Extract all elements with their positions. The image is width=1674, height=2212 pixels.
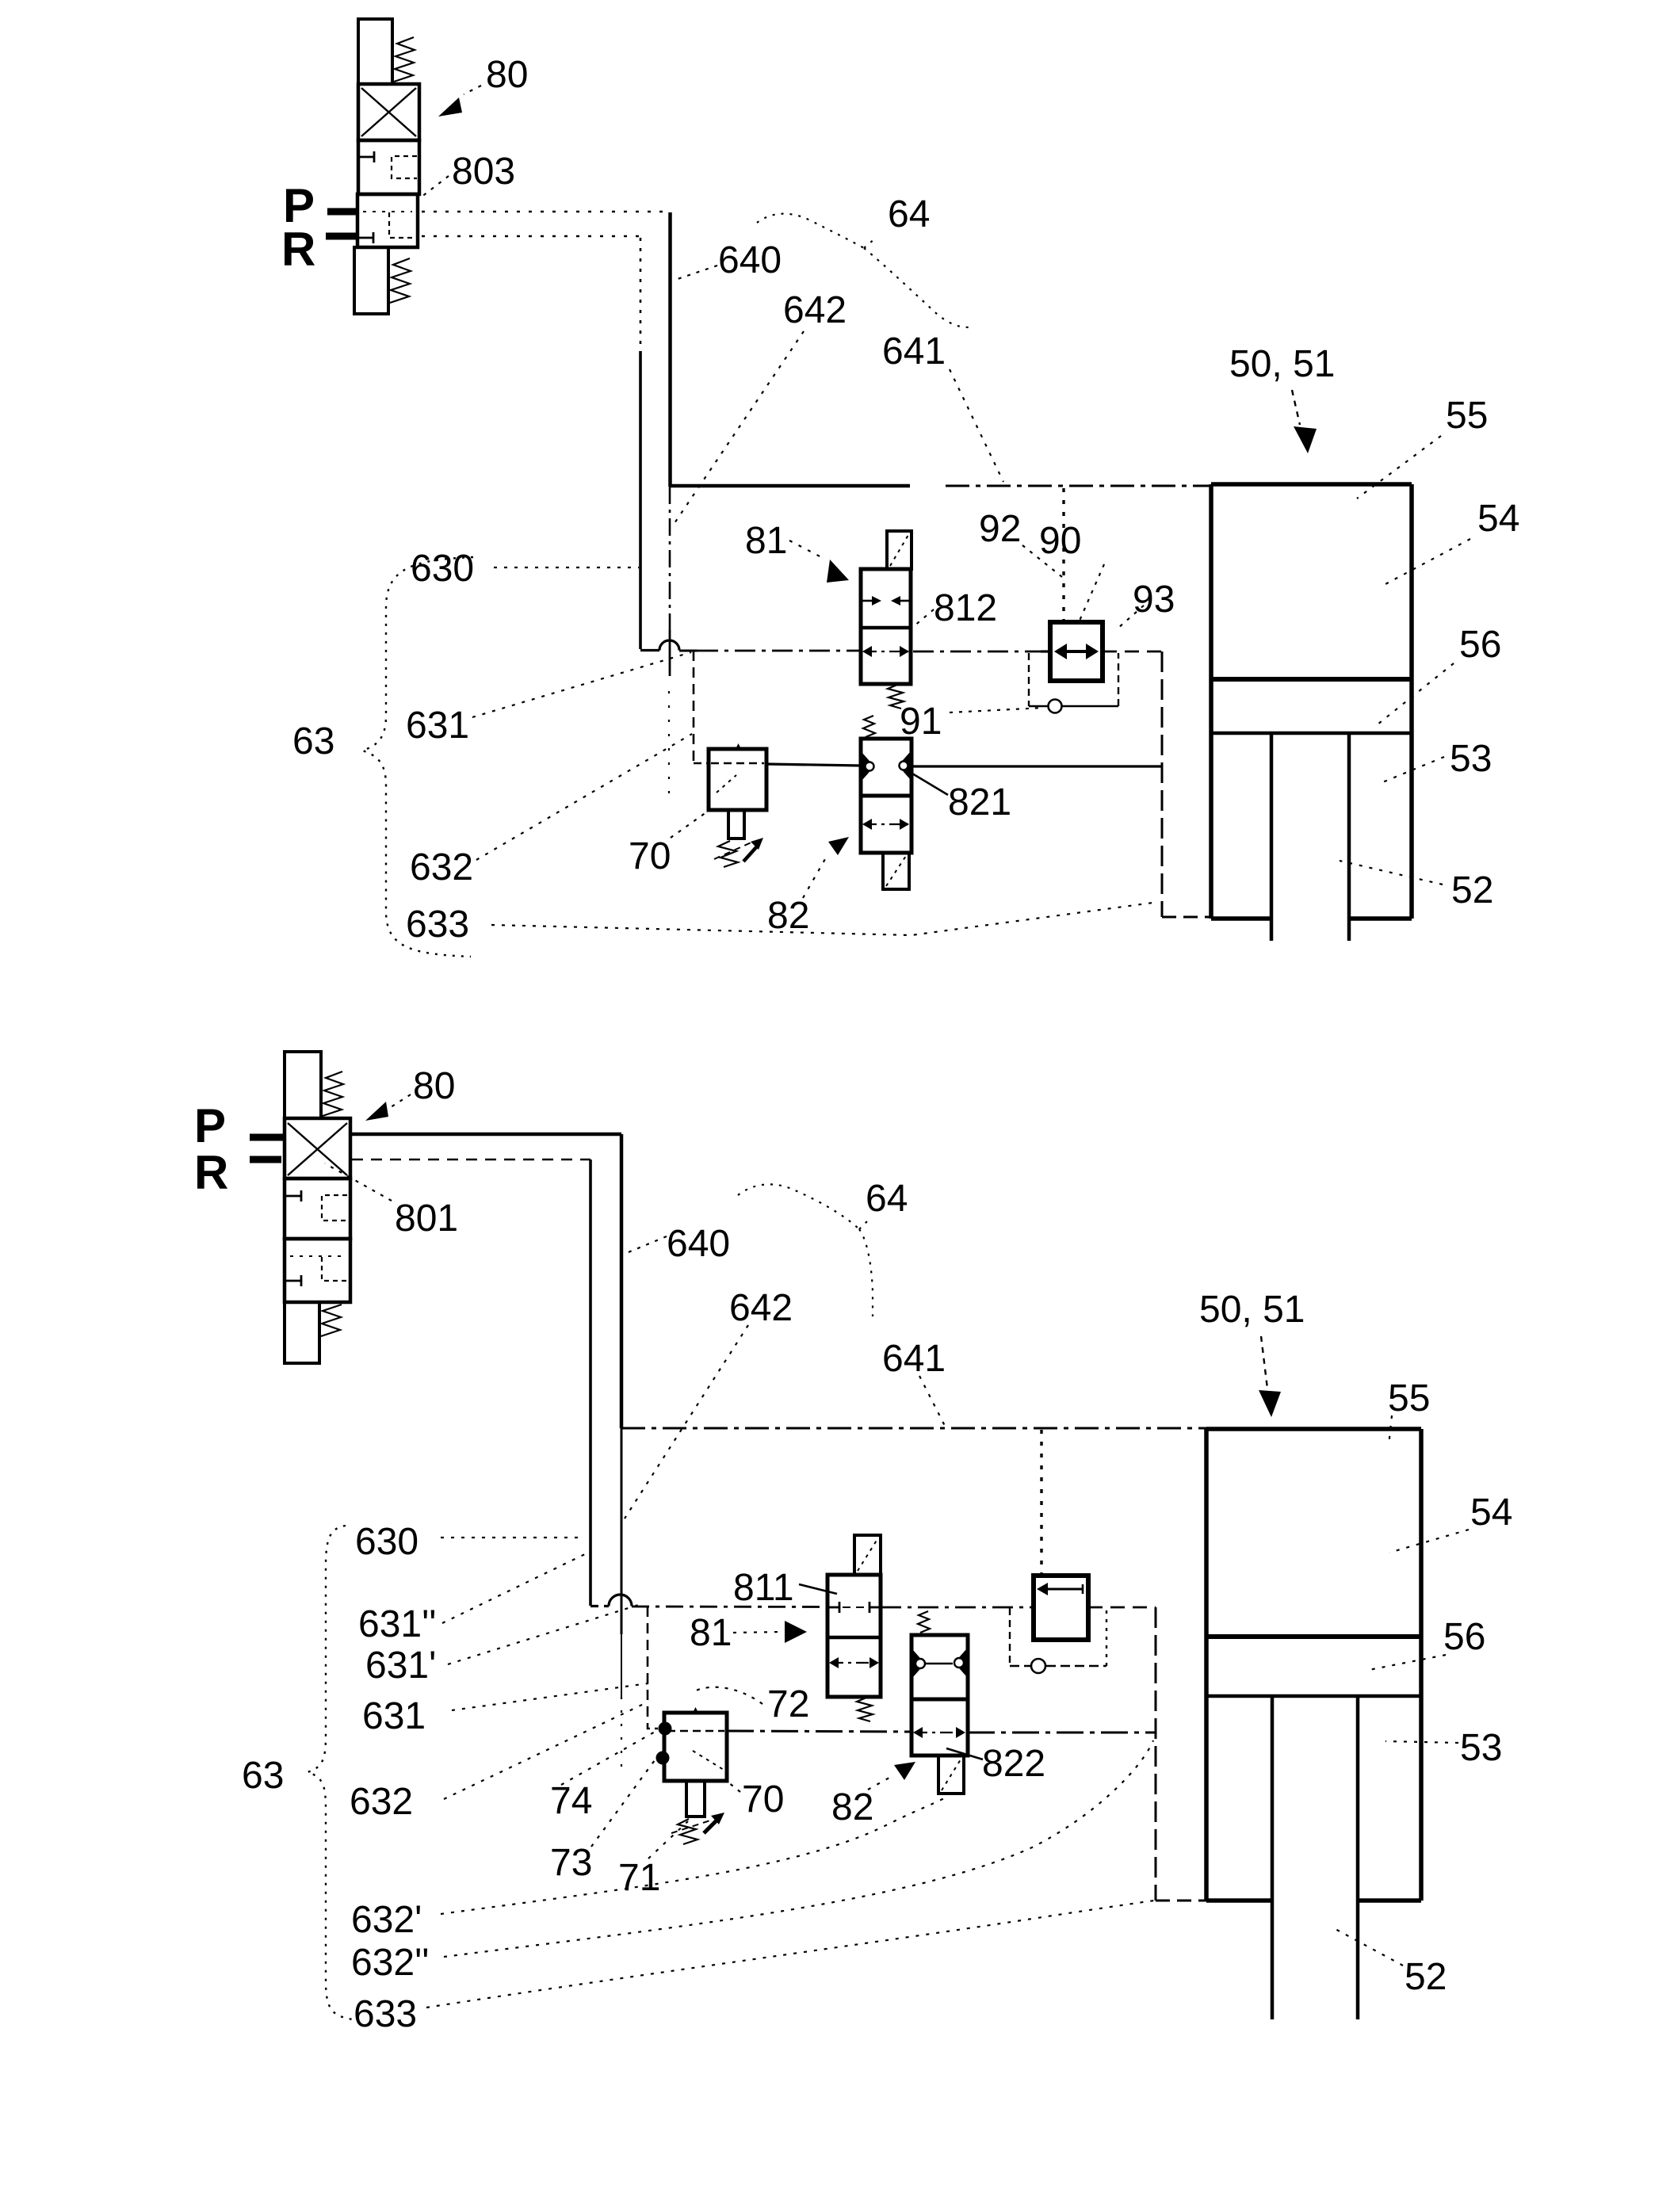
svg-text:64: 64 bbox=[888, 193, 930, 235]
svg-text:642: 642 bbox=[729, 1287, 793, 1329]
svg-text:55: 55 bbox=[1388, 1377, 1430, 1419]
svg-text:53: 53 bbox=[1450, 738, 1492, 780]
svg-text:56: 56 bbox=[1443, 1616, 1485, 1658]
svg-text:633: 633 bbox=[406, 904, 469, 946]
svg-text:631: 631 bbox=[406, 705, 469, 747]
svg-text:63: 63 bbox=[242, 1755, 284, 1797]
svg-text:50, 51: 50, 51 bbox=[1199, 1289, 1305, 1331]
svg-text:82: 82 bbox=[831, 1786, 873, 1828]
svg-text:71: 71 bbox=[618, 1857, 660, 1899]
svg-text:641: 641 bbox=[882, 1338, 946, 1380]
svg-text:64: 64 bbox=[866, 1178, 908, 1220]
svg-text:821: 821 bbox=[948, 781, 1011, 823]
svg-text:52: 52 bbox=[1405, 1956, 1447, 1998]
svg-text:632'': 632'' bbox=[351, 1942, 429, 1984]
svg-text:72: 72 bbox=[767, 1683, 809, 1725]
svg-text:50, 51: 50, 51 bbox=[1229, 343, 1335, 385]
svg-text:R: R bbox=[194, 1146, 228, 1199]
svg-text:90: 90 bbox=[1039, 520, 1081, 562]
svg-text:641: 641 bbox=[882, 330, 946, 372]
svg-text:P: P bbox=[194, 1099, 226, 1152]
svg-text:63: 63 bbox=[292, 720, 334, 762]
svg-text:73: 73 bbox=[550, 1842, 592, 1884]
svg-text:R: R bbox=[281, 223, 315, 276]
svg-text:52: 52 bbox=[1451, 869, 1493, 911]
svg-text:812: 812 bbox=[934, 587, 997, 629]
svg-text:803: 803 bbox=[452, 151, 515, 193]
svg-text:81: 81 bbox=[690, 1612, 732, 1654]
svg-text:81: 81 bbox=[745, 520, 787, 562]
svg-text:631'': 631'' bbox=[358, 1603, 436, 1645]
svg-text:74: 74 bbox=[550, 1780, 592, 1822]
svg-text:80: 80 bbox=[413, 1065, 455, 1107]
svg-text:630: 630 bbox=[411, 548, 474, 590]
svg-text:92: 92 bbox=[979, 508, 1021, 550]
svg-text:632: 632 bbox=[350, 1781, 413, 1823]
svg-text:56: 56 bbox=[1459, 624, 1501, 666]
svg-text:801: 801 bbox=[395, 1198, 458, 1240]
svg-text:53: 53 bbox=[1460, 1727, 1502, 1769]
svg-text:633: 633 bbox=[354, 1993, 417, 2035]
svg-text:54: 54 bbox=[1477, 498, 1519, 540]
svg-text:82: 82 bbox=[767, 895, 809, 937]
svg-text:55: 55 bbox=[1446, 395, 1488, 437]
svg-text:632: 632 bbox=[410, 846, 473, 888]
svg-text:70: 70 bbox=[629, 835, 671, 877]
svg-text:630: 630 bbox=[355, 1521, 418, 1563]
svg-text:640: 640 bbox=[718, 239, 782, 281]
svg-text:70: 70 bbox=[742, 1778, 784, 1820]
svg-text:631: 631 bbox=[362, 1695, 426, 1737]
svg-text:811: 811 bbox=[733, 1567, 794, 1609]
svg-text:640: 640 bbox=[667, 1223, 730, 1265]
svg-text:91: 91 bbox=[900, 701, 942, 743]
svg-text:632': 632' bbox=[351, 1899, 422, 1941]
svg-text:93: 93 bbox=[1133, 579, 1175, 621]
svg-text:80: 80 bbox=[486, 54, 528, 96]
svg-text:642: 642 bbox=[783, 289, 847, 331]
svg-text:631': 631' bbox=[365, 1645, 436, 1687]
svg-text:54: 54 bbox=[1470, 1492, 1512, 1534]
svg-text:822: 822 bbox=[982, 1743, 1045, 1785]
